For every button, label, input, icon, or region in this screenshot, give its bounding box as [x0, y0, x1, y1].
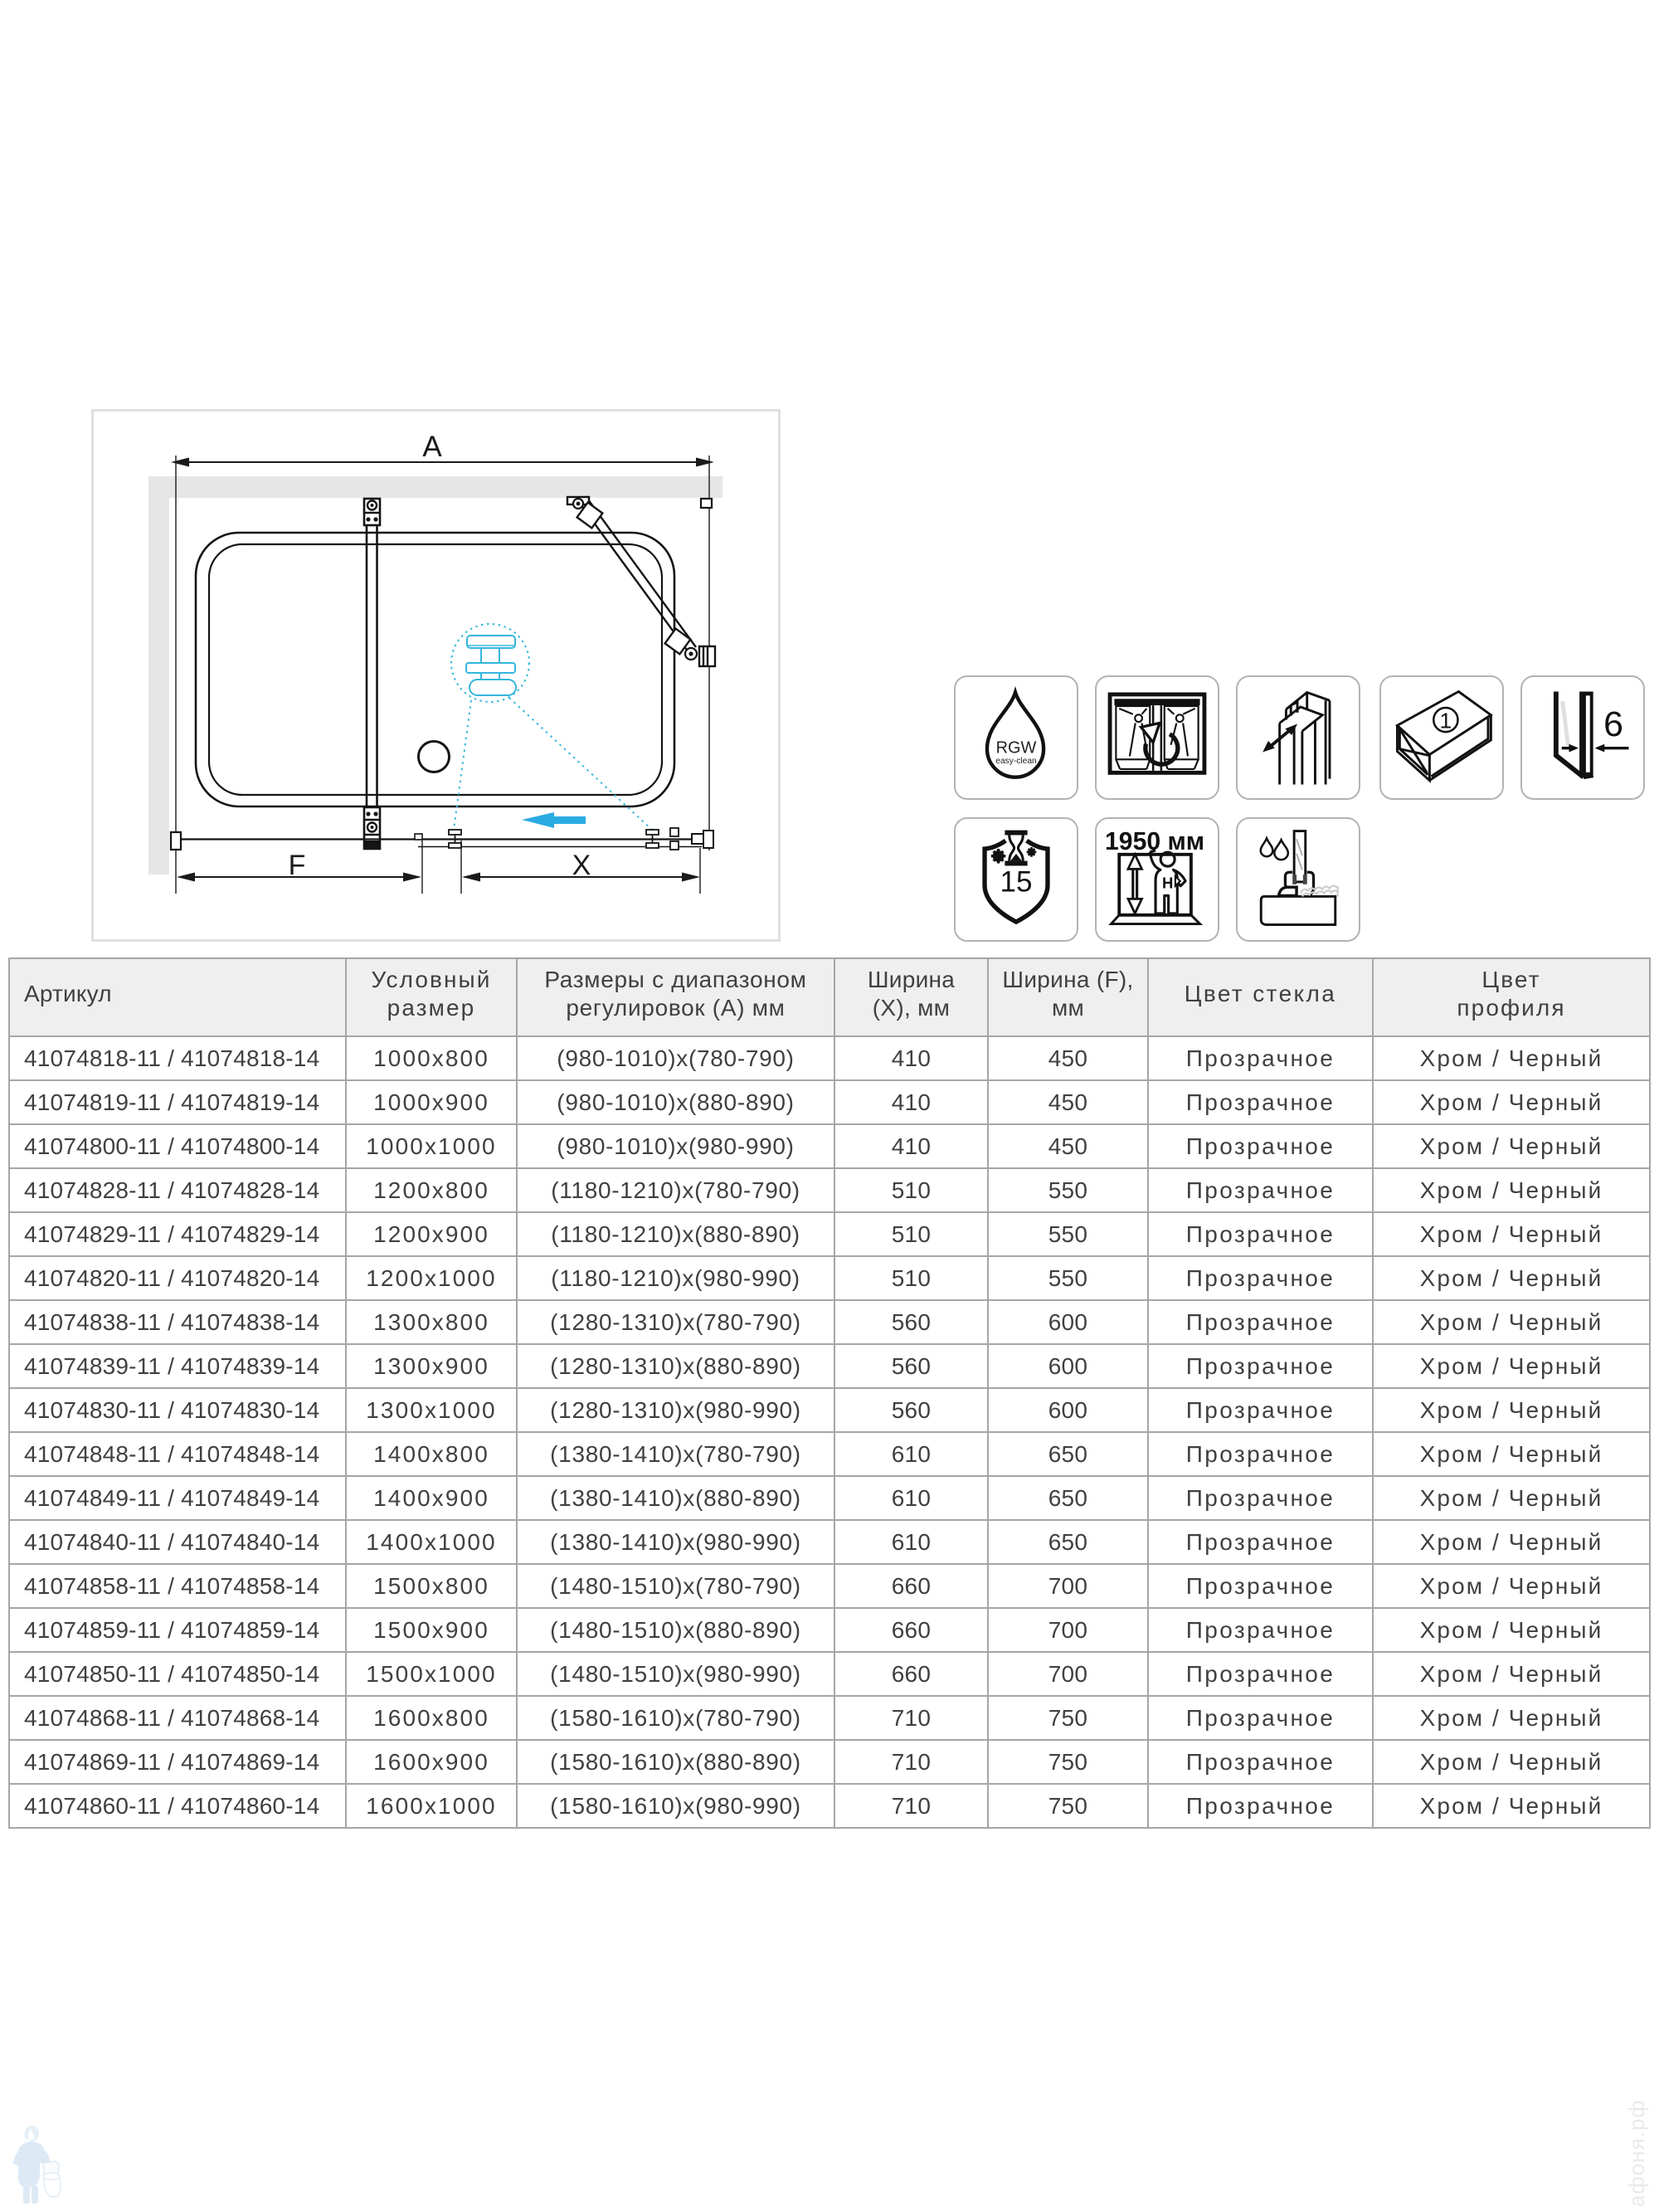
svg-text:6: 6 [1603, 704, 1623, 744]
svg-text:15: 15 [1000, 866, 1033, 899]
svg-text:A: A [422, 431, 442, 463]
svg-text:RGW: RGW [996, 738, 1037, 757]
svg-text:H: H [1162, 875, 1173, 892]
svg-text:1: 1 [1440, 708, 1452, 733]
svg-text:F: F [289, 850, 306, 881]
svg-text:X: X [572, 850, 591, 881]
svg-text:easy-clean: easy-clean [995, 757, 1037, 766]
